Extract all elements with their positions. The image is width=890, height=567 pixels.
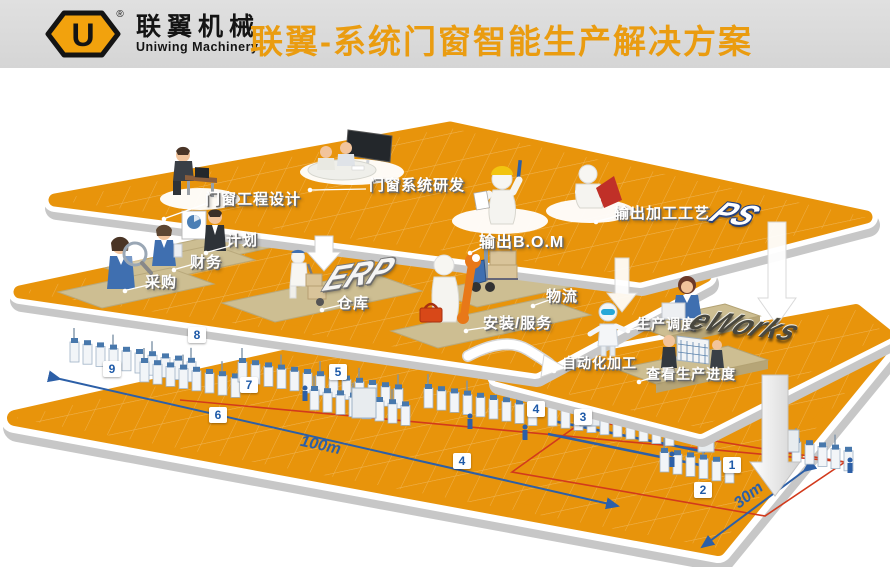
label-automated-processing: 自动化加工: [562, 353, 637, 373]
solution-diagram: U ® 联翼机械 Uniwing Machinery 联翼-系统门窗智能生产解决…: [0, 0, 890, 567]
brand-name-cn: 联翼机械: [136, 14, 260, 40]
label-purchase: 采购: [145, 271, 177, 292]
station-badge-9: 9: [103, 361, 121, 377]
label-output-process: 输出加工工艺: [614, 202, 710, 223]
cup-icon: [174, 244, 182, 257]
company-brand: U ® 联翼机械 Uniwing Machinery: [40, 7, 260, 61]
label-window-system-rd: 门窗系统研发: [369, 174, 465, 195]
label-view-production-progress: 查看生产进度: [646, 364, 736, 384]
station-badge-5: 5: [329, 364, 347, 380]
page-header: U ® 联翼机械 Uniwing Machinery 联翼-系统门窗智能生产解决…: [0, 0, 890, 68]
label-finance: 财务: [190, 251, 222, 272]
station-badge-2: 2: [694, 482, 712, 498]
label-logistics: 物流: [546, 285, 578, 306]
label-output-bom: 输出B.O.M: [479, 228, 564, 252]
robot-visor-icon: [601, 309, 615, 315]
registered-mark: ®: [116, 9, 124, 20]
document-icon: [474, 191, 490, 210]
brand-name-en: Uniwing Machinery: [136, 40, 260, 54]
label-plan: 计划: [226, 229, 258, 250]
box-icon: [306, 274, 322, 286]
station-badge-1: 1: [723, 457, 741, 473]
uniwing-logo-icon: U ®: [40, 7, 126, 61]
label-window-engineering-design: 门窗工程设计: [205, 188, 301, 209]
station-badge-4b: 4: [453, 453, 471, 469]
toolbox-icon: [420, 308, 442, 322]
station-badge-8: 8: [188, 327, 206, 343]
label-install-service: 安装/服务: [483, 312, 552, 333]
station-badge-4a: 4: [527, 401, 545, 417]
page-title: 联翼-系统门窗智能生产解决方案: [250, 15, 753, 63]
station-badge-7: 7: [240, 377, 258, 393]
logo-letter: U: [71, 17, 94, 53]
station-badge-6: 6: [209, 407, 227, 423]
station-badge-3: 3: [574, 409, 592, 425]
